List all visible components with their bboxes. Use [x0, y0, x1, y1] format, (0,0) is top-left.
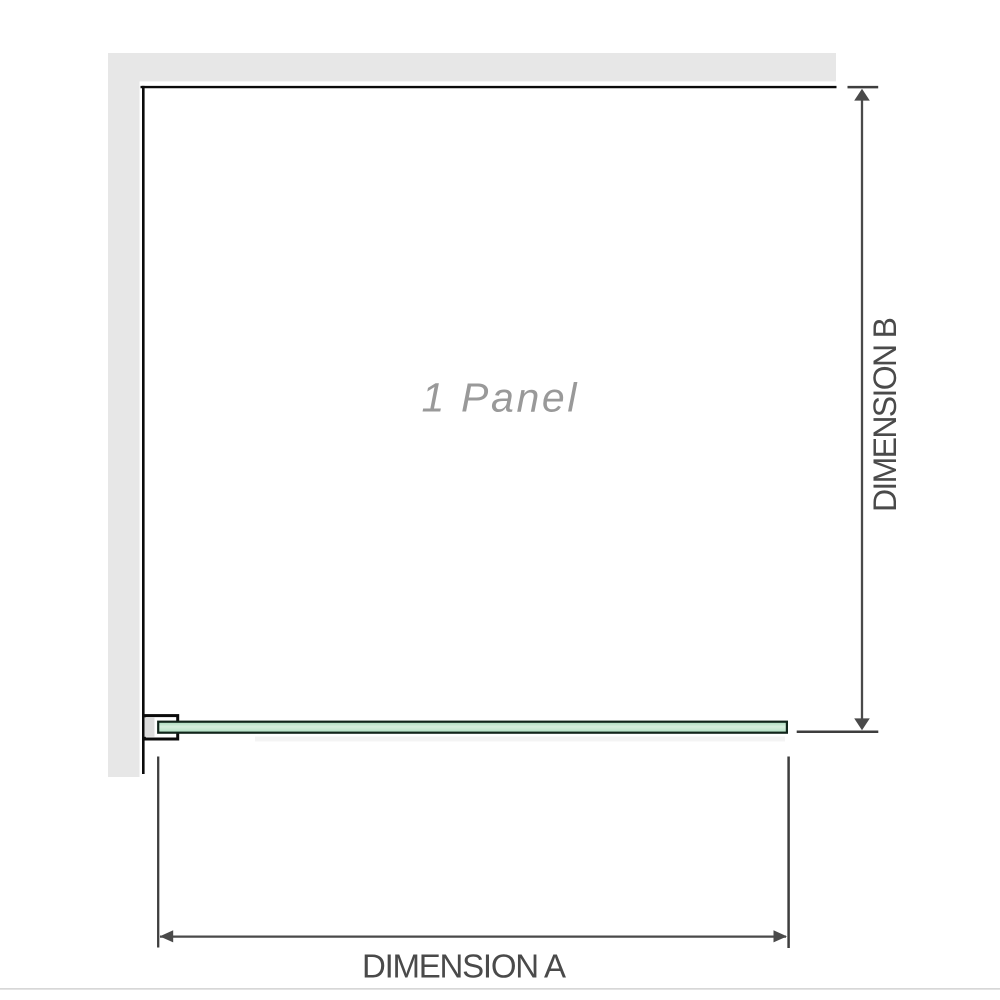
svg-text:DIMENSION B: DIMENSION B — [867, 317, 903, 512]
svg-text:1 Panel: 1 Panel — [422, 375, 579, 421]
svg-text:DIMENSION A: DIMENSION A — [362, 948, 566, 985]
